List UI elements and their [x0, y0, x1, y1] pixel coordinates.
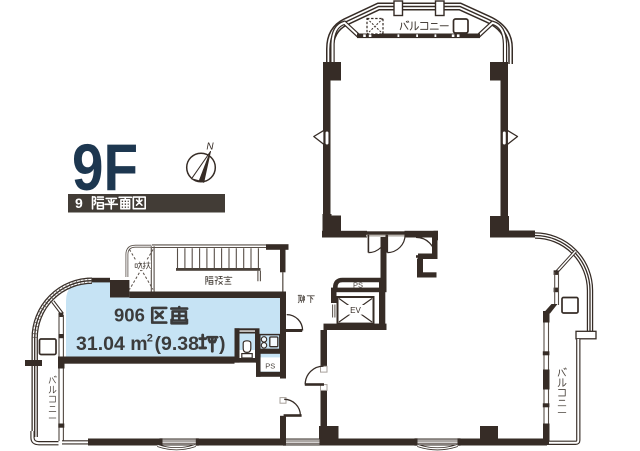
svg-text:31.04 m: 31.04 m — [76, 333, 148, 355]
svg-text:EV: EV — [350, 306, 361, 315]
svg-text:9F: 9F — [72, 130, 138, 204]
svg-text:9: 9 — [75, 195, 83, 211]
svg-text:2: 2 — [147, 333, 153, 345]
svg-text:PS: PS — [265, 362, 275, 371]
svg-text:): ) — [219, 333, 226, 355]
svg-text:N: N — [206, 142, 214, 153]
svg-text:906: 906 — [114, 305, 145, 326]
svg-text:(9.38: (9.38 — [155, 333, 200, 355]
svg-text:PS: PS — [353, 280, 363, 289]
